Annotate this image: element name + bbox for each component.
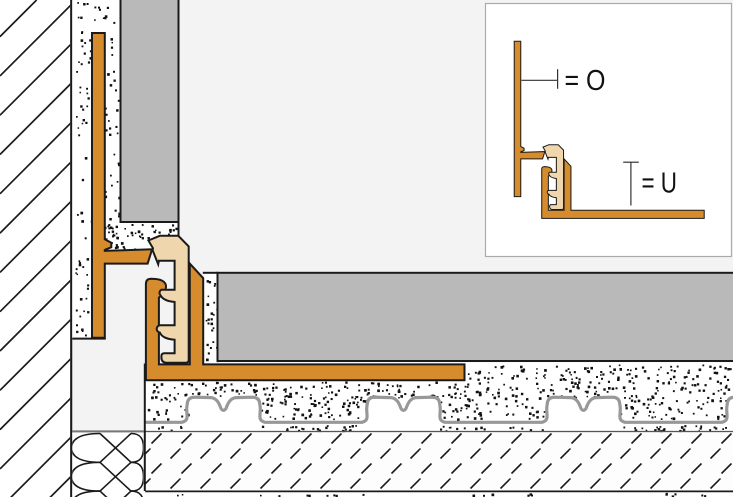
svg-text:= U: = U	[642, 167, 678, 199]
svg-text:= O: = O	[565, 65, 606, 97]
